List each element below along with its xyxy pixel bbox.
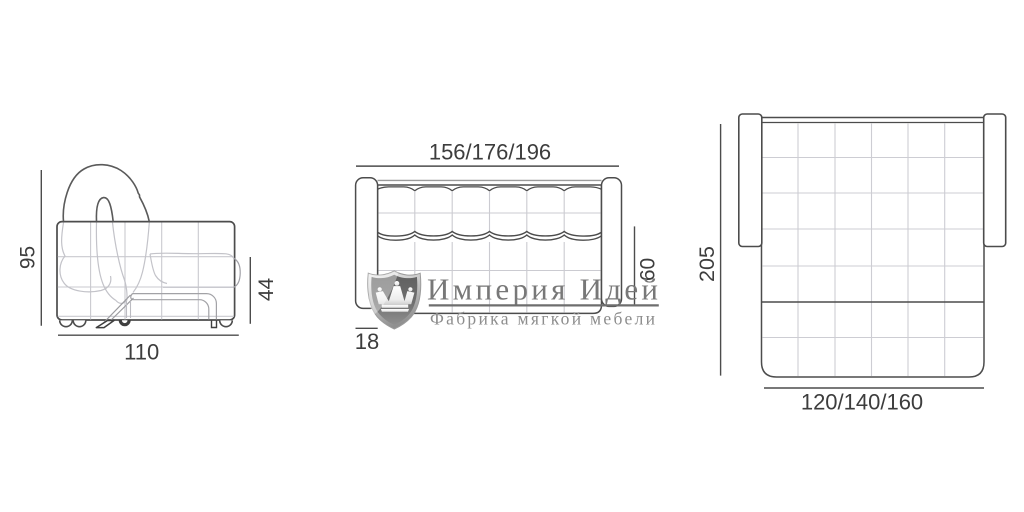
svg-text:156/176/196: 156/176/196 xyxy=(429,139,551,164)
svg-text:205: 205 xyxy=(695,246,719,282)
svg-text:Фабрика мягкой мебели: Фабрика мягкой мебели xyxy=(430,308,655,328)
svg-text:Империя Идей: Империя Идей xyxy=(427,272,658,307)
svg-text:120/140/160: 120/140/160 xyxy=(801,390,923,415)
svg-text:110: 110 xyxy=(124,340,159,365)
svg-text:18: 18 xyxy=(355,329,379,354)
svg-text:95: 95 xyxy=(17,246,40,269)
svg-text:44: 44 xyxy=(255,278,278,302)
